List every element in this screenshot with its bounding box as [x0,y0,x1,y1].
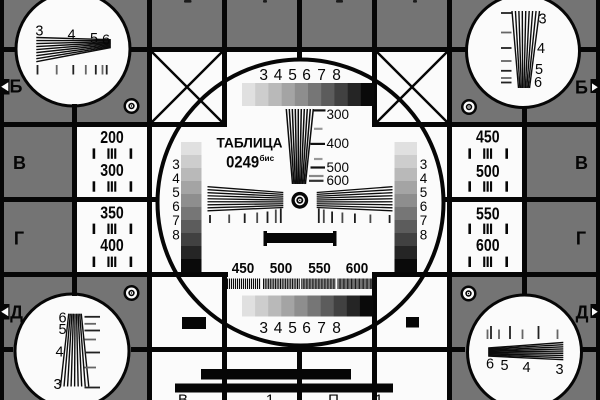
svg-text:6: 6 [302,320,311,337]
svg-text:450: 450 [476,126,500,146]
svg-text:3: 3 [259,320,268,337]
svg-text:П: П [328,392,339,400]
svg-text:В: В [13,153,26,173]
svg-text:7: 7 [172,213,180,228]
svg-text:8: 8 [332,320,341,337]
svg-text:6: 6 [486,357,494,373]
svg-text:5: 5 [58,322,66,338]
svg-text:5: 5 [420,185,428,200]
svg-text:550: 550 [308,261,331,277]
svg-text:200: 200 [100,127,124,147]
svg-text:4: 4 [420,171,428,186]
svg-text:7: 7 [317,320,326,337]
svg-text:7: 7 [317,67,326,84]
svg-text:бис: бис [260,153,275,163]
svg-text:300: 300 [100,160,124,180]
svg-text:550: 550 [476,204,500,224]
svg-text:1: 1 [375,392,383,400]
svg-text:500: 500 [270,261,293,277]
svg-text:600: 600 [346,261,369,277]
svg-text:8: 8 [420,228,428,243]
svg-text:4: 4 [56,345,64,361]
svg-text:1: 1 [266,392,274,400]
svg-text:6: 6 [302,67,311,84]
svg-text:4: 4 [68,28,76,44]
svg-text:8: 8 [332,67,341,84]
svg-text:Г: Г [14,228,24,248]
svg-text:5: 5 [288,320,297,337]
svg-text:4: 4 [522,360,530,376]
svg-text:400: 400 [327,136,350,151]
svg-text:4: 4 [274,320,283,337]
svg-text:6: 6 [172,199,180,214]
svg-text:4: 4 [537,41,545,57]
svg-text:Б: Б [10,77,23,97]
svg-text:6: 6 [102,33,110,49]
svg-text:3: 3 [53,377,61,393]
svg-text:3: 3 [172,157,180,172]
svg-text:600: 600 [476,235,500,255]
svg-text:Б: Б [575,77,588,97]
svg-text:6: 6 [534,75,542,91]
svg-text:Д: Д [10,302,23,322]
svg-text:6: 6 [420,199,428,214]
svg-text:ТАБЛИЦА: ТАБЛИЦА [217,135,283,151]
svg-text:3: 3 [555,362,563,378]
svg-text:400: 400 [100,235,124,255]
svg-text:500: 500 [476,161,500,181]
svg-text:7: 7 [420,213,428,228]
svg-text:350: 350 [100,203,124,223]
svg-text:3: 3 [259,67,268,84]
svg-text:5: 5 [288,67,297,84]
svg-text:3: 3 [538,12,546,28]
svg-text:300: 300 [327,107,350,122]
svg-text:Д: Д [576,302,589,322]
svg-text:5: 5 [90,31,98,47]
svg-text:В: В [178,392,188,400]
svg-text:0249: 0249 [226,152,259,171]
svg-text:3: 3 [420,157,428,172]
svg-text:Г: Г [576,228,586,248]
svg-text:4: 4 [172,171,180,186]
svg-text:5: 5 [500,358,508,374]
svg-text:8: 8 [172,228,180,243]
svg-text:4: 4 [274,67,283,84]
svg-text:600: 600 [327,173,350,188]
svg-text:450: 450 [232,261,255,277]
svg-text:5: 5 [172,185,180,200]
svg-text:3: 3 [35,24,43,40]
svg-text:В: В [575,153,588,173]
